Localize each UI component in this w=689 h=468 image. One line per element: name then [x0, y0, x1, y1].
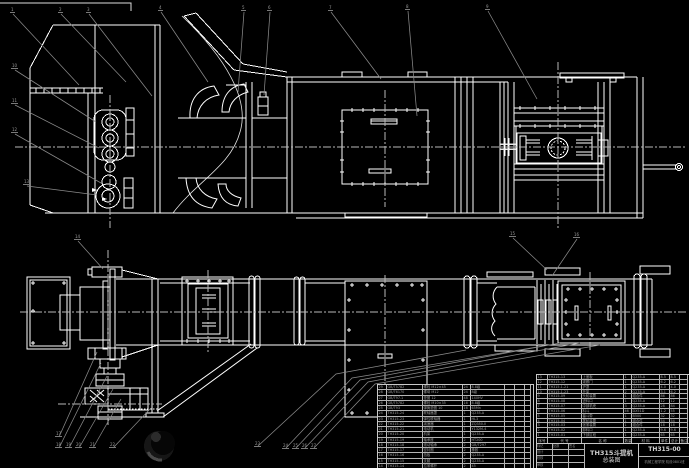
bom-cell: [525, 464, 531, 468]
organization-text: 机械工程学院 机设0801班: [639, 457, 689, 468]
callout-number: 9: [485, 5, 490, 10]
callout-number: 20: [75, 443, 82, 448]
watermark-logo: [144, 431, 175, 461]
callout-number: 22: [109, 443, 116, 448]
bom-cell: TH315-14: [387, 464, 423, 468]
bom-cell: [505, 464, 515, 468]
bom-table-continuation: 29GB/T5782螺栓 M12×45248.8级28GB/T6170螺母 M1…: [377, 384, 534, 468]
callout-number: 5: [241, 6, 246, 11]
elevation-view: [30, 13, 683, 218]
drawing-number-cell: TH315-00 机械工程学院 机设0801班: [639, 444, 689, 468]
drawing-title-cell: TH315斗提机 总装图: [585, 444, 639, 468]
product-title: TH315斗提机: [590, 450, 633, 457]
callout-number: 6: [267, 6, 272, 11]
bom-cell: 拉紧螺杆: [423, 464, 463, 468]
callout-number: 13: [23, 180, 30, 185]
bom-cell: 14: [378, 464, 387, 468]
revision-grid: 标记处数签名设计校核审核: [537, 444, 585, 468]
title-block: 标记处数签名设计校核审核 TH315斗提机 总装图 TH315-00 机械工程学…: [536, 443, 689, 468]
bom-cell: [515, 464, 525, 468]
bom-cell: 2: [463, 464, 471, 468]
revision-grid-cell: 审核: [537, 463, 553, 468]
bom-table-main: 13TH315-13上盖板1Q235-A8.58.512TH315-12观察门1…: [536, 374, 689, 439]
callout-number: 24: [282, 444, 289, 449]
callout-number: 21: [89, 443, 96, 448]
callout-number: 18: [55, 443, 62, 448]
drawing-number: TH315-00: [639, 444, 689, 457]
callout-number: 12: [11, 128, 18, 133]
callout-number: 4: [158, 6, 163, 11]
callout-number: 14: [74, 235, 81, 240]
cad-drawing-screenshot: 1234567891011121314151617181920212223242…: [0, 0, 689, 468]
sheet-frame-corner: [0, 3, 131, 11]
callout-number: 2: [58, 8, 63, 13]
callout-number: 16: [573, 233, 580, 238]
callout-number: 23: [254, 442, 261, 447]
callout-number: 25: [292, 444, 299, 449]
bom-cell: 45: [471, 464, 505, 468]
callout-number: 3: [86, 8, 91, 13]
callout-number: 1: [10, 8, 15, 13]
revision-grid-cell: [569, 463, 585, 468]
bom-row: 14TH315-14拉紧螺杆245: [378, 464, 531, 468]
revision-grid-cell: [553, 463, 569, 468]
callout-number: 7: [328, 6, 333, 11]
callout-number: 26: [301, 444, 308, 449]
callout-number: 27: [310, 444, 317, 449]
callout-number: 10: [11, 64, 18, 69]
callout-number: 11: [11, 99, 18, 104]
callout-number: 17: [55, 432, 62, 437]
callout-number: 15: [509, 232, 516, 237]
elevation-centerlines: [15, 62, 685, 228]
callout-number: 19: [65, 443, 72, 448]
sheet-name: 总装图: [602, 457, 620, 464]
callout-number: 8: [405, 5, 410, 10]
